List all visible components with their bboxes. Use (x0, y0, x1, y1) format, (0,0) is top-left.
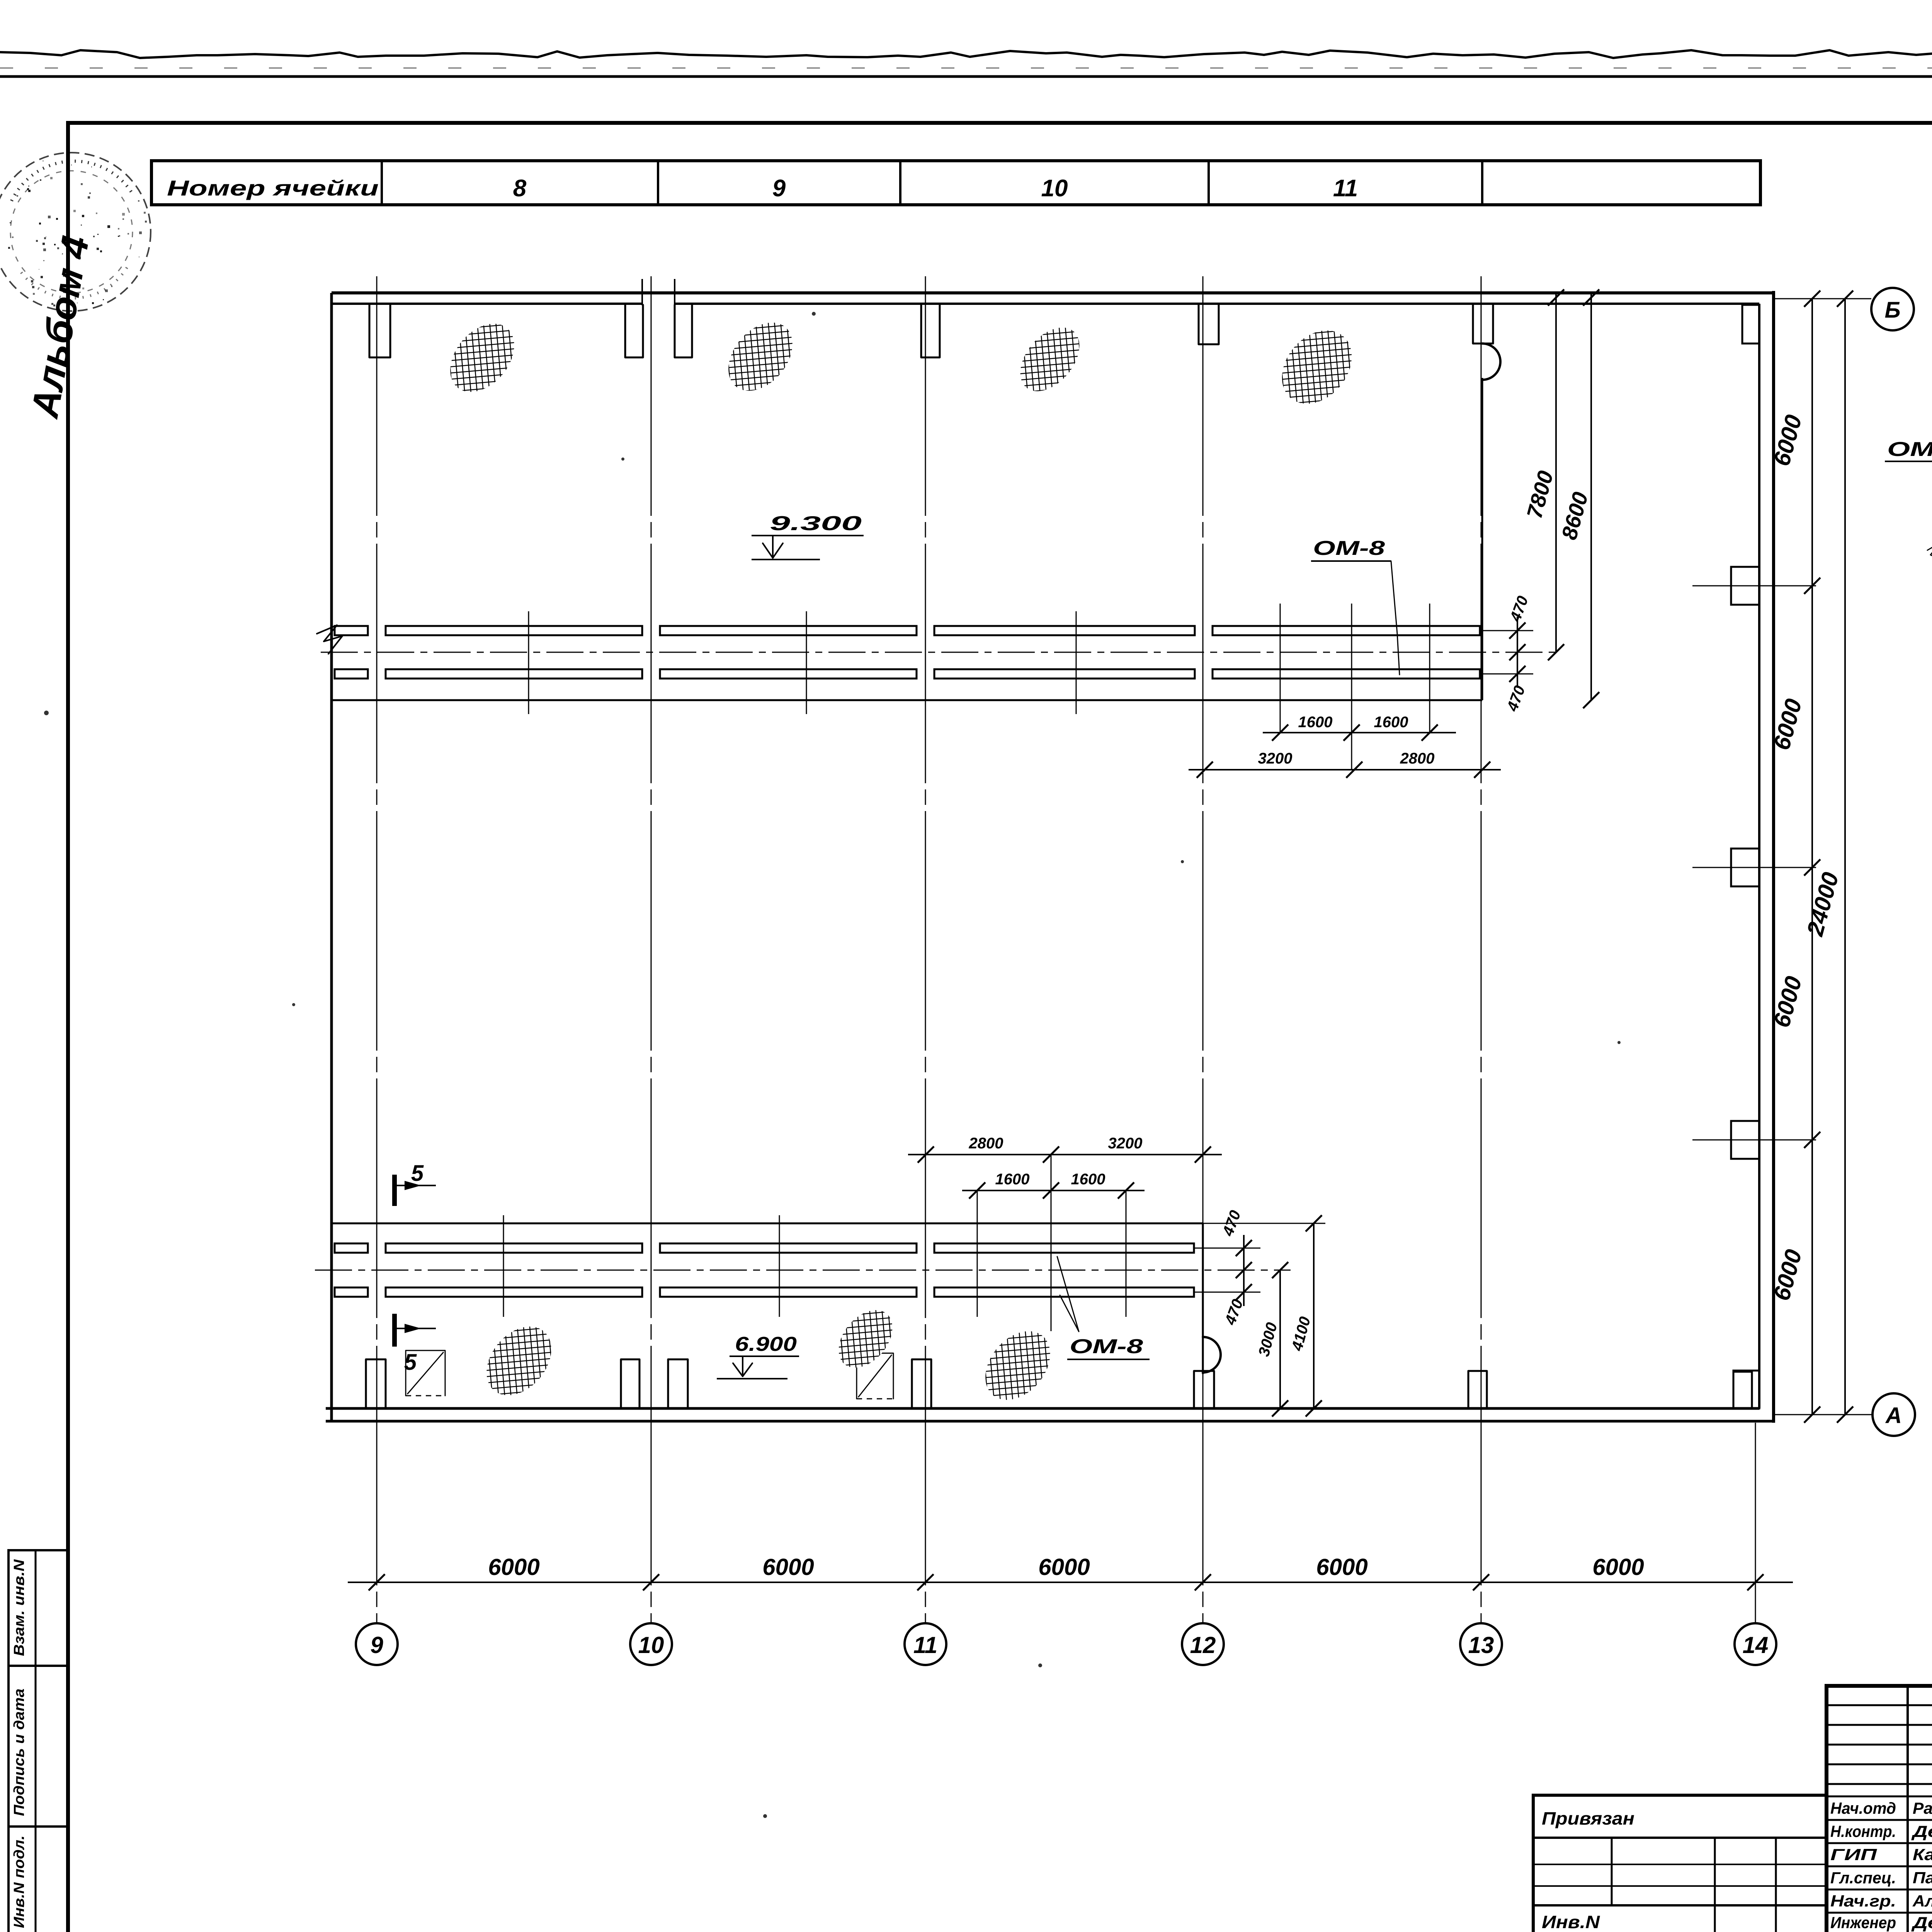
svg-text:ОМ-8: ОМ-8 (1313, 537, 1385, 560)
svg-text:Гл.спец.: Гл.спец. (1830, 1869, 1896, 1887)
svg-text:Взам. инв.N: Взам. инв.N (11, 1559, 27, 1656)
svg-text:Нач.отд: Нач.отд (1830, 1799, 1896, 1817)
svg-text:6.900: 6.900 (735, 1333, 797, 1355)
svg-text:Нач.гр.: Нач.гр. (1830, 1892, 1896, 1910)
svg-text:ОМ-8: ОМ-8 (1887, 438, 1932, 461)
svg-text:10: 10 (1041, 175, 1068, 202)
svg-text:Номер ячейки: Номер ячейки (167, 176, 379, 200)
svg-text:1600: 1600 (1374, 714, 1408, 731)
svg-text:6000: 6000 (1316, 1554, 1367, 1580)
svg-text:Подпись и дата: Подпись и дата (11, 1689, 27, 1816)
svg-text:10: 10 (638, 1632, 664, 1658)
svg-text:ГИП: ГИП (1830, 1845, 1877, 1864)
svg-text:Алексеева: Алексеева (1912, 1892, 1932, 1910)
svg-text:Калугина: Калугина (1913, 1845, 1932, 1864)
svg-text:ОМ-8: ОМ-8 (1070, 1335, 1143, 1358)
svg-text:1600: 1600 (1071, 1171, 1105, 1188)
svg-text:6000: 6000 (762, 1554, 814, 1580)
svg-text:5: 5 (411, 1161, 424, 1186)
svg-text:А: А (1885, 1403, 1902, 1428)
svg-text:Инв.N подл.: Инв.N подл. (11, 1835, 27, 1928)
svg-text:2800: 2800 (1400, 750, 1435, 767)
svg-text:6000: 6000 (1592, 1554, 1644, 1580)
svg-text:Демкина: Демкина (1911, 1913, 1932, 1932)
svg-text:6000: 6000 (1038, 1554, 1090, 1580)
svg-text:Привязан: Привязан (1542, 1808, 1634, 1828)
svg-text:5: 5 (404, 1350, 417, 1375)
svg-text:13: 13 (1468, 1632, 1494, 1658)
svg-text:Н.контр.: Н.контр. (1830, 1822, 1896, 1840)
svg-text:Раменский: Раменский (1913, 1799, 1932, 1817)
svg-text:11: 11 (1333, 175, 1358, 202)
svg-text:Б: Б (1884, 298, 1900, 323)
svg-text:Инв.N: Инв.N (1542, 1912, 1600, 1932)
svg-text:9: 9 (772, 175, 786, 202)
svg-text:3200: 3200 (1108, 1135, 1143, 1152)
svg-text:11: 11 (913, 1632, 937, 1658)
svg-text:3200: 3200 (1258, 750, 1293, 767)
svg-text:6000: 6000 (488, 1554, 539, 1580)
svg-text:2800: 2800 (969, 1135, 1003, 1152)
svg-text:12: 12 (1190, 1632, 1216, 1658)
svg-text:1600: 1600 (1298, 714, 1333, 731)
svg-text:Демкина: Демкина (1911, 1822, 1932, 1840)
svg-text:8: 8 (513, 175, 527, 202)
svg-text:14: 14 (1743, 1632, 1769, 1658)
svg-text:Паршуков: Паршуков (1913, 1869, 1932, 1887)
svg-text:1600: 1600 (995, 1171, 1030, 1188)
svg-text:9.300: 9.300 (770, 512, 862, 535)
svg-text:Инженер: Инженер (1830, 1913, 1896, 1932)
svg-text:9: 9 (370, 1632, 383, 1658)
